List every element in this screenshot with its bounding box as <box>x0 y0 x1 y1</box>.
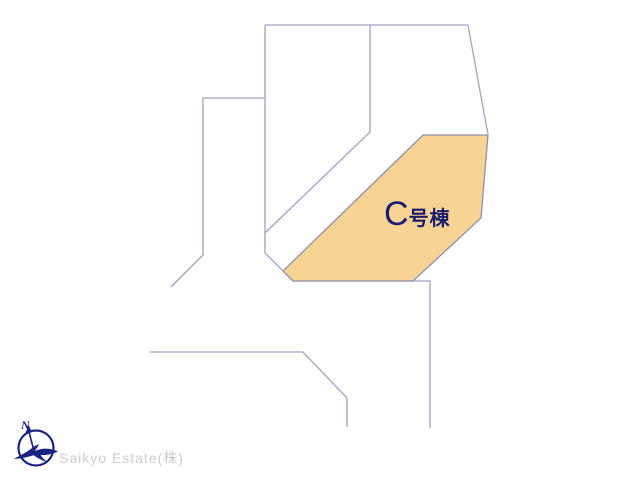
boundary-line <box>171 98 265 287</box>
boundary-line <box>265 25 488 134</box>
lot-label: C号棟 <box>384 197 451 231</box>
lot-suffix: 号棟 <box>409 209 451 229</box>
compass-bird-logo-icon: N <box>9 415 65 471</box>
lot-boundaries-canvas <box>0 0 640 480</box>
bird-silhouette <box>14 444 58 463</box>
compass-north-label: N <box>20 418 31 432</box>
lot-letter: C <box>384 197 409 231</box>
boundary-line <box>150 352 347 427</box>
site-plan: C号棟 N Saikyo Estate(株) <box>0 0 640 480</box>
company-name: Saikyo Estate(株) <box>59 448 184 468</box>
